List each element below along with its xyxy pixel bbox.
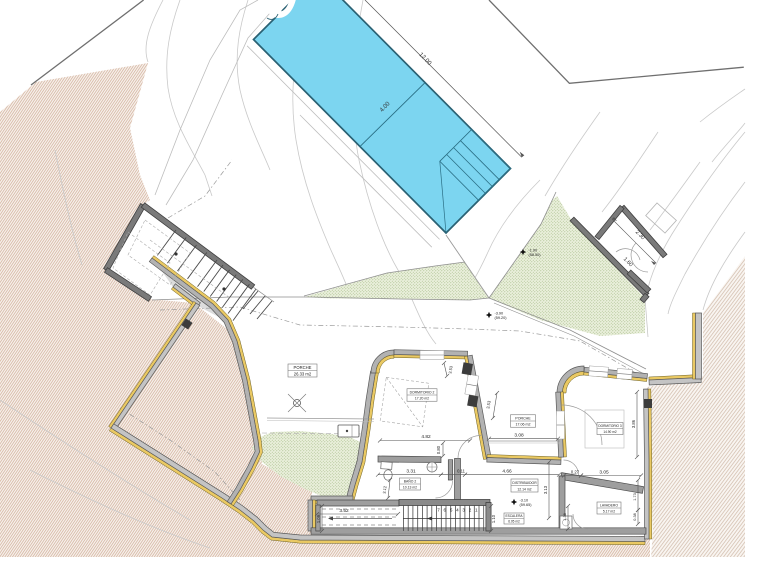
svg-text:LAVADERO: LAVADERO [600, 503, 618, 507]
svg-text:1: 1 [475, 508, 478, 513]
svg-text:0.27: 0.27 [571, 470, 580, 475]
svg-text:3.13: 3.13 [543, 485, 548, 494]
svg-text:6: 6 [444, 508, 447, 513]
svg-text:1.73: 1.73 [633, 493, 637, 500]
svg-text:6.05 m2: 6.05 m2 [508, 519, 520, 523]
svg-text:2: 2 [469, 508, 472, 513]
svg-text:5: 5 [450, 508, 453, 513]
svg-text:3.05: 3.05 [599, 470, 609, 476]
svg-text:3.08: 3.08 [514, 433, 524, 439]
svg-text:(59.20): (59.20) [495, 316, 508, 320]
svg-text:26.33 m2: 26.33 m2 [294, 371, 312, 376]
svg-text:3.86: 3.86 [631, 419, 636, 428]
svg-text:ESCALERA: ESCALERA [505, 514, 523, 518]
svg-text:4: 4 [456, 508, 459, 513]
svg-text:DORMITORIO 3: DORMITORIO 3 [598, 424, 622, 428]
svg-text:0.80: 0.80 [436, 445, 441, 454]
svg-text:10.13 m2: 10.13 m2 [403, 485, 417, 489]
svg-text:BAÑO 2: BAÑO 2 [404, 478, 417, 483]
svg-text:DORMITORIO 2: DORMITORIO 2 [410, 390, 435, 394]
svg-text:7: 7 [437, 508, 440, 513]
svg-text:(59.65): (59.65) [520, 503, 533, 507]
svg-text:4.82: 4.82 [421, 434, 431, 440]
svg-text:17.20 m2: 17.20 m2 [415, 397, 429, 401]
svg-text:0.11: 0.11 [457, 469, 466, 474]
svg-text:PORCHE: PORCHE [515, 416, 531, 420]
svg-text:(58.50): (58.50) [529, 253, 542, 257]
svg-text:17.06 m2: 17.06 m2 [516, 423, 531, 427]
svg-text:1.10: 1.10 [491, 514, 496, 523]
svg-text:DISTRIBUIDOR: DISTRIBUIDOR [512, 481, 537, 485]
svg-text:4.66: 4.66 [502, 469, 512, 475]
svg-text:12.14 m2: 12.14 m2 [517, 487, 531, 491]
svg-text:5.17 m2: 5.17 m2 [603, 509, 615, 513]
svg-text:3.52: 3.52 [339, 508, 349, 514]
svg-text:1.09: 1.09 [316, 514, 321, 523]
svg-text:1.38: 1.38 [563, 513, 567, 520]
svg-text:14.90 m2: 14.90 m2 [603, 430, 617, 434]
svg-text:PORCHE: PORCHE [294, 365, 312, 370]
svg-text:3: 3 [462, 508, 465, 513]
svg-text:0.38: 0.38 [633, 513, 637, 520]
svg-text:3.31: 3.31 [406, 469, 416, 475]
